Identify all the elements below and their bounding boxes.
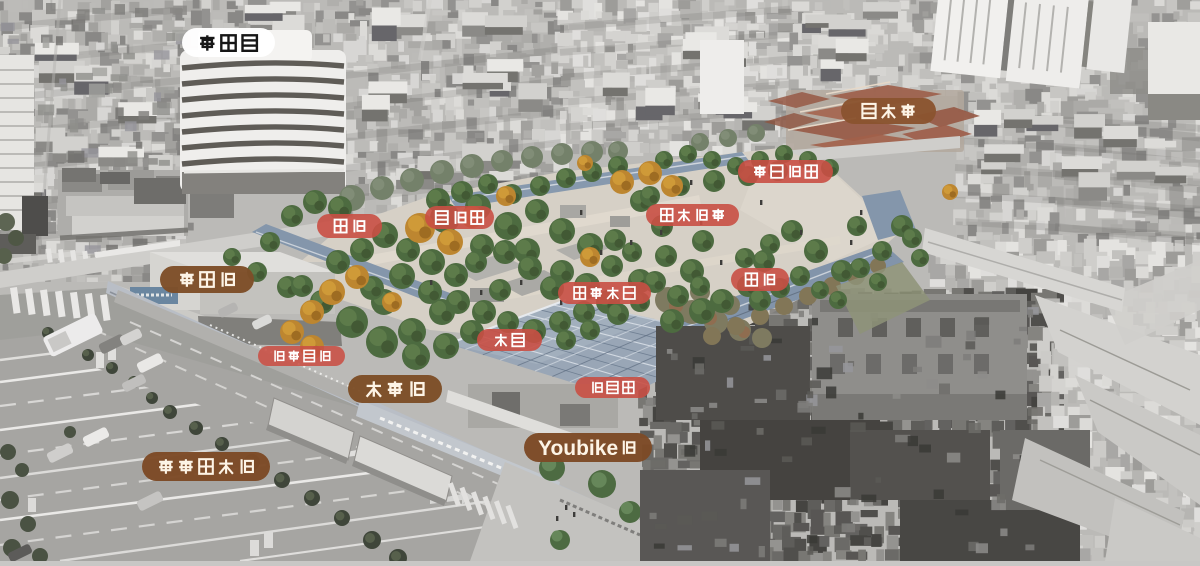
svg-text:Youbike: Youbike [538, 437, 618, 460]
